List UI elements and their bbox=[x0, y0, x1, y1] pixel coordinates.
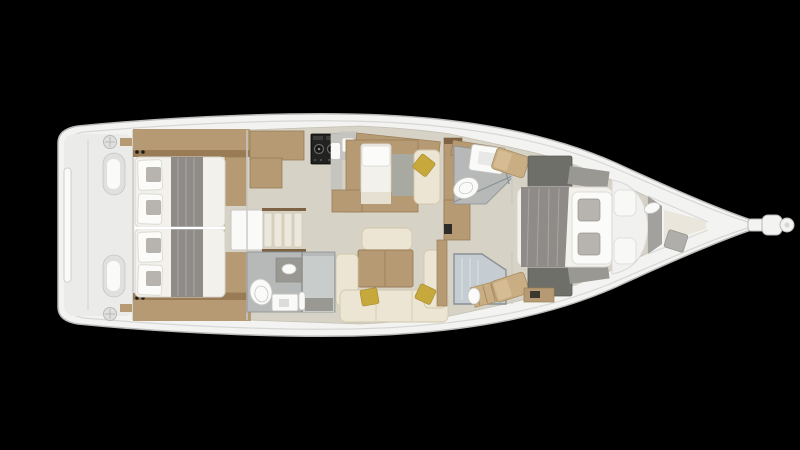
shower-seat-cushion bbox=[468, 288, 480, 304]
cockpit-trim-starboard bbox=[120, 304, 132, 312]
pillow bbox=[362, 146, 390, 166]
helm-console-starboard bbox=[103, 255, 125, 297]
transom-bench bbox=[64, 168, 71, 282]
accent-pillow bbox=[360, 288, 380, 307]
blanket bbox=[171, 157, 203, 227]
yacht-floor-plan bbox=[0, 0, 800, 450]
salon-table bbox=[358, 250, 413, 287]
galley-counter-leg bbox=[250, 158, 282, 188]
blanket bbox=[171, 229, 203, 297]
shower-side-cabinet bbox=[437, 240, 447, 306]
cockpit-swim-platform bbox=[64, 130, 134, 321]
shower-bench bbox=[305, 298, 333, 311]
island-bed bbox=[517, 180, 648, 274]
pillow bbox=[578, 233, 600, 255]
dinette bbox=[358, 228, 413, 287]
aft-berth-port bbox=[135, 157, 225, 227]
winch-starboard bbox=[104, 308, 117, 321]
floor-plan-stage bbox=[0, 0, 800, 450]
shower-column bbox=[299, 292, 305, 310]
galley-counter bbox=[250, 131, 304, 160]
pillow bbox=[578, 199, 600, 221]
cockpit-trim-port bbox=[120, 138, 132, 146]
settee-backrest bbox=[362, 228, 412, 250]
sink bbox=[282, 264, 296, 274]
wardrobe-port bbox=[528, 156, 572, 188]
nav-daybed bbox=[332, 140, 440, 212]
galley-end-counter bbox=[331, 134, 342, 190]
aft-head bbox=[247, 252, 335, 312]
nav-pad bbox=[392, 154, 414, 196]
helm-console-port bbox=[103, 153, 125, 195]
aft-berth-starboard bbox=[135, 229, 225, 297]
winch-port bbox=[104, 136, 117, 149]
